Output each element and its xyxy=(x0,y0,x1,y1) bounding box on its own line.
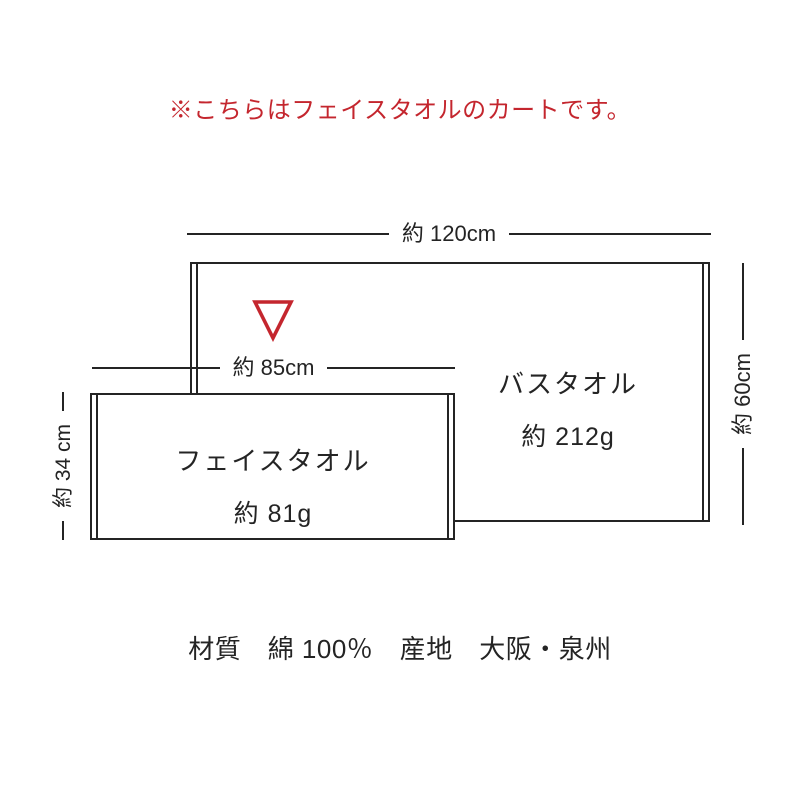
dimension-line xyxy=(742,263,744,340)
notice-text: ※こちらはフェイスタオルのカートです。 xyxy=(0,90,800,125)
bath-towel-height-dimension: 約 60cm xyxy=(731,263,755,525)
towel-hem-line xyxy=(702,264,704,520)
dimension-line xyxy=(187,233,389,235)
face-towel-text-block: フェイスタオル 約 81g xyxy=(148,441,398,530)
bath-towel-height-label: 約 60cm xyxy=(732,353,754,435)
dimension-line xyxy=(62,521,64,540)
product-diagram-canvas: ※こちらはフェイスタオルのカートです。 約 120cm バスタオル 約 212g… xyxy=(0,0,800,800)
towel-hem-line xyxy=(96,395,98,538)
bath-towel-weight: 約 212g xyxy=(521,417,615,453)
face-towel-label: フェイスタオル xyxy=(175,441,370,478)
face-towel-width-label: 約 85cm xyxy=(233,357,315,379)
red-triangle-marker xyxy=(251,298,295,342)
dimension-line xyxy=(742,448,744,525)
face-towel-weight: 約 81g xyxy=(234,494,313,530)
dimension-line xyxy=(62,392,64,411)
bath-towel-label: バスタオル xyxy=(498,364,638,401)
bath-towel-width-dimension: 約 120cm xyxy=(187,222,711,246)
dimension-line xyxy=(327,367,455,369)
material-origin-text: 材質 綿 100％ 産地 大阪・泉州 xyxy=(0,629,800,666)
bath-towel-text-block: バスタオル 約 212g xyxy=(443,364,693,453)
face-towel-height-label: 約 34 cm xyxy=(53,424,74,508)
bath-towel-width-label: 約 120cm xyxy=(402,223,496,245)
dimension-line xyxy=(92,367,220,369)
face-towel-height-dimension: 約 34 cm xyxy=(51,392,75,540)
dimension-line xyxy=(509,233,711,235)
face-towel-width-dimension: 約 85cm xyxy=(92,356,455,380)
